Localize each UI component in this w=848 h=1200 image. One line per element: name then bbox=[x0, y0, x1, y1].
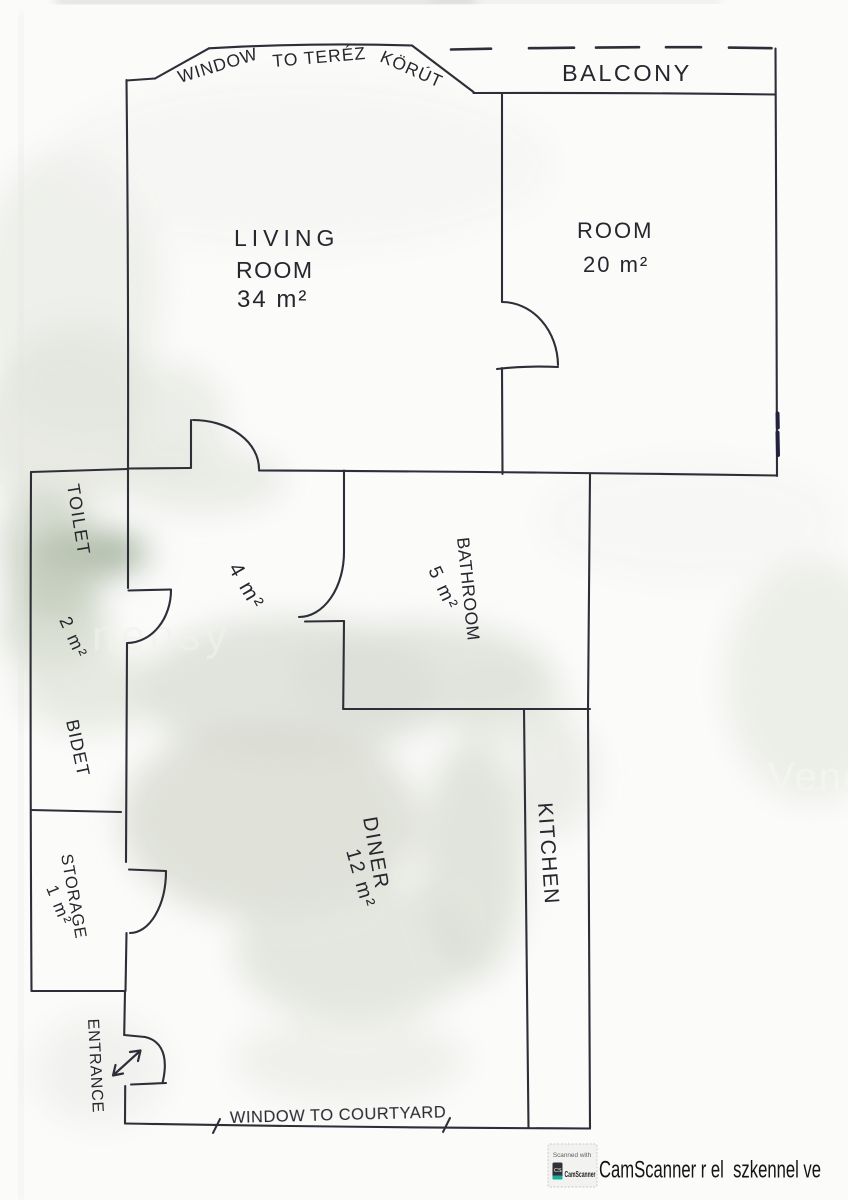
svg-text:CamScanner r el szkennel ve: CamScanner r el szkennel ve bbox=[599, 1157, 821, 1184]
svg-text:LIVING: LIVING bbox=[234, 225, 339, 251]
svg-text:CS: CS bbox=[554, 1168, 562, 1174]
svg-text:34 m²: 34 m² bbox=[237, 286, 308, 313]
svg-text:Scanned with: Scanned with bbox=[553, 1152, 592, 1159]
svg-text:CamScanner: CamScanner bbox=[565, 1169, 596, 1179]
svg-text:BALCONY: BALCONY bbox=[562, 60, 692, 86]
svg-text:20 m²: 20 m² bbox=[583, 252, 649, 277]
svg-text:Vene: Vene bbox=[768, 755, 848, 799]
svg-text:ROOM: ROOM bbox=[577, 218, 653, 243]
svg-text:ROOM: ROOM bbox=[236, 257, 314, 283]
svg-text:neosy: neosy bbox=[92, 612, 232, 660]
